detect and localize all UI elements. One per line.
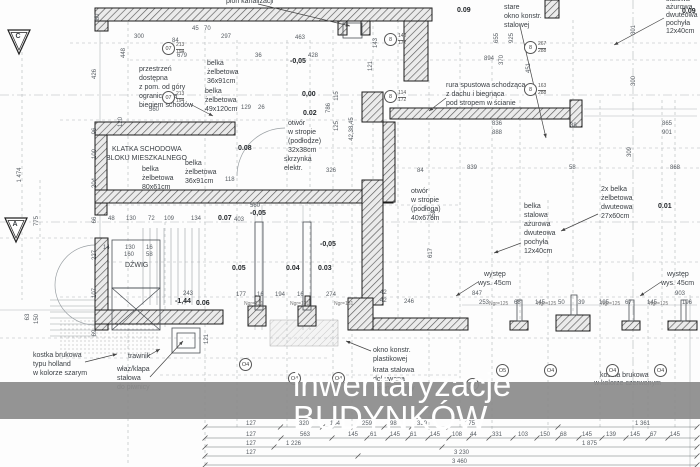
opening-tag-numbers: 267288	[538, 42, 546, 55]
dimension-value: 72	[148, 216, 155, 222]
level-marker: -1,44	[175, 298, 191, 305]
dimension-value-rotated: 66	[92, 208, 98, 232]
dimension-value: 134	[191, 216, 201, 222]
foundation-note: Ngr=131	[334, 302, 353, 307]
annotation-label: dostępna	[139, 75, 168, 82]
dimension-value-rotated: 115	[334, 84, 340, 108]
opening-tag-circle: 8	[524, 83, 537, 96]
annotation-label: belka	[185, 160, 202, 167]
dimension-value-rotated: 42,38,45	[349, 117, 355, 141]
thin-wall	[172, 328, 200, 353]
dimension-value: 194	[275, 292, 285, 298]
annotation-label: żelbetowa	[185, 169, 217, 176]
annotation-label: wys. 45cm	[478, 280, 511, 287]
dimension-value: 326	[326, 168, 336, 174]
dimension-value: 50	[558, 300, 565, 306]
opening-tag-numbers: 114172	[398, 91, 406, 104]
annotation-label: 27x60cm	[601, 213, 629, 220]
wall-segment	[362, 180, 383, 305]
level-marker: 0.03	[318, 265, 332, 272]
dimension-value: 428	[308, 53, 318, 59]
level-marker: 0.06	[196, 300, 210, 307]
dimension-value: 888	[492, 130, 502, 136]
annotation-label: żelbetowa	[601, 195, 633, 202]
opening-tag-numbers: 163288	[538, 84, 546, 97]
foundation-note: Ngr=125	[537, 302, 556, 307]
level-marker: 0.08	[238, 145, 252, 152]
axis-marker-letter: A	[13, 221, 18, 228]
level-marker: 0.09	[457, 7, 471, 14]
dimension-value-rotated: 107	[92, 281, 98, 305]
annotation-label: żelbetowa	[205, 97, 237, 104]
dimension-value-rotated: 100	[92, 142, 98, 166]
annotation-label: pion kanalizacji	[226, 0, 273, 5]
dimension-value-rotated: 204	[92, 171, 98, 195]
level-marker: 0.01	[658, 203, 672, 210]
dimension-value-rotated: 925	[509, 26, 515, 50]
foundation-note: Ngr=125	[649, 302, 668, 307]
dimension-value: 130	[125, 245, 135, 251]
dimension-value: 26	[258, 105, 265, 111]
dimension-value-rotated: 80	[95, 5, 101, 29]
wall-segment	[95, 310, 223, 324]
dimension-value-rotated: 952	[431, 203, 437, 227]
annotation-label: trawnik	[128, 353, 150, 360]
dimension-value: 70	[204, 26, 211, 32]
dimension-value: 901	[662, 130, 672, 136]
leader-line	[640, 282, 661, 296]
dimension-value: 868	[670, 165, 680, 171]
dimension-value: 297	[221, 34, 231, 40]
dimension-value-rotated: 300	[631, 69, 637, 93]
annotation-label: plastikowej	[373, 356, 407, 363]
level-marker: 0,00	[302, 91, 316, 98]
dimension-value: 253	[479, 300, 489, 306]
dimension-value-rotated: 426	[92, 62, 98, 86]
leader-line	[614, 18, 664, 45]
annotation-label: belka	[142, 166, 159, 173]
annotation-label: skrzynka	[284, 156, 312, 163]
opening-tag-numbers: 213194	[176, 92, 184, 105]
annotation-label: żelbetowa	[207, 69, 239, 76]
dimension-value: 894	[484, 56, 494, 62]
dimension-value-rotated: 786	[326, 96, 332, 120]
dimension-value: 67	[625, 300, 632, 306]
wall-segment	[545, 0, 559, 18]
annotation-label: DŹWIG	[125, 262, 148, 269]
annotation-label: KLATKA SCHODOWA	[112, 146, 182, 153]
opening-tag-circle: 8	[384, 33, 397, 46]
door-swing-arc	[55, 285, 95, 325]
annotation-label: stare	[504, 4, 520, 11]
level-marker: -0,05	[320, 241, 336, 248]
annotation-label: okno konstr.	[373, 347, 411, 354]
annotation-label: 49x120cm	[205, 106, 237, 113]
foundation-note: Ngr=125	[489, 302, 508, 307]
wall-segment	[556, 315, 590, 331]
dimension-value: 42	[380, 290, 387, 296]
door-swing-arc	[55, 245, 95, 285]
dimension-value: 130	[126, 216, 136, 222]
dimension-value: 38	[570, 123, 577, 129]
annotation-label: 2x belka	[601, 186, 627, 193]
annotation-label: przestrzeń	[139, 66, 172, 73]
annotation-label: (podłodze)	[288, 138, 321, 145]
wall-segment	[95, 190, 393, 203]
dimension-value-rotated: 120	[118, 110, 124, 134]
annotation-label: BLOKU MIESZKALNEGO	[106, 155, 187, 162]
dimension-value: 403	[234, 217, 244, 223]
wall-segment	[404, 21, 428, 81]
dimension-value: 243	[183, 291, 193, 297]
dimension-value: 1 226	[286, 441, 301, 447]
dimension-value-rotated: 617	[428, 241, 434, 265]
axis-marker-letter: C	[16, 33, 21, 40]
annotation-label: elektr.	[284, 165, 303, 172]
dimension-value: 58	[569, 165, 576, 171]
dimension-value-rotated: 69	[92, 321, 98, 345]
floor-plan-canvas: CA127320154259983391751 3611275631456114…	[0, 0, 700, 467]
wall-segment	[95, 122, 235, 135]
dimension-value: 463	[295, 35, 305, 41]
dimension-value: 839	[467, 165, 477, 171]
dimension-value: 39	[578, 300, 585, 306]
dimension-value: 836	[492, 121, 502, 127]
annotation-label: z dachu i biegnąca	[446, 91, 504, 98]
foundation-note: Ngr=125	[601, 302, 620, 307]
dimension-value-rotated: 150	[34, 307, 40, 331]
annotation-label: okno konstr.	[504, 13, 542, 20]
dimension-value: 1 875	[582, 441, 597, 447]
annotation-label: pochyła	[666, 20, 690, 27]
wall-segment	[622, 321, 640, 330]
level-marker: 0.07	[218, 215, 232, 222]
wall-segment	[383, 122, 395, 202]
level-marker: 0.04	[286, 265, 300, 272]
annotation-label: 36x91cm	[185, 178, 213, 185]
level-marker: 0.09	[682, 8, 696, 15]
annotation-label: 32x38cm	[288, 147, 316, 154]
annotation-label: dwuteowa	[524, 230, 556, 237]
wall-segment	[362, 92, 383, 122]
wall-segment	[298, 306, 316, 326]
annotation-label: 12x40cm	[524, 248, 552, 255]
dimension-value: 560	[149, 107, 159, 113]
opening-tag-numbers: 213194	[176, 43, 184, 56]
dimension-value-rotated: 125	[334, 114, 340, 138]
wall-segment	[390, 108, 572, 119]
level-marker: 0.02	[303, 110, 317, 117]
opening-tag-circle: 07	[162, 42, 175, 55]
level-marker: 0.05	[232, 265, 246, 272]
dimension-value: 118	[225, 177, 235, 183]
dimension-value: 16	[257, 292, 264, 298]
annotation-label: otwór	[411, 188, 428, 195]
level-marker: -0,05	[290, 58, 306, 65]
annotation-label: stalowa	[524, 212, 548, 219]
annotation-label: otwór	[288, 120, 305, 127]
leader-line	[346, 341, 371, 351]
dimension-value-rotated: 121	[368, 54, 374, 78]
dimension-value: 45	[192, 26, 199, 32]
dimension-value: 160	[124, 252, 134, 258]
dimension-value: 14	[103, 245, 110, 251]
dimension-value-rotated: 63	[25, 305, 31, 329]
level-marker: -0,05	[250, 210, 266, 217]
annotation-label: 36x91cm	[207, 78, 235, 85]
dimension-value: 3 230	[454, 450, 469, 456]
dimension-value-rotated: 1 474	[17, 163, 23, 187]
dimension-value: 36	[255, 53, 262, 59]
annotation-label: belka	[205, 88, 222, 95]
dimension-value-rotated: 309	[627, 140, 633, 164]
annotation-label: pod stropem w ścianie	[446, 100, 516, 107]
leader-line	[494, 243, 521, 253]
wall-segment	[668, 321, 697, 330]
annotation-label: wys. 45cm	[661, 280, 694, 287]
annotation-label: stalowej	[504, 22, 529, 29]
annotation-label: żelbetowa	[142, 175, 174, 182]
annotation-label: belka	[207, 60, 224, 67]
opening-tag-circle: 8	[384, 90, 397, 103]
annotation-label: w stropie	[288, 129, 316, 136]
opening-tag-circle: 07	[162, 91, 175, 104]
dimension-value: 3 460	[452, 459, 467, 465]
opening-tag-numbers: 140172	[398, 34, 406, 47]
wall-segment	[95, 8, 432, 21]
opening-tag-circle: 8	[524, 41, 537, 54]
dimension-value: 177	[236, 292, 246, 298]
dimension-value: 274	[326, 292, 336, 298]
annotation-label: ażurowa	[524, 221, 550, 228]
annotation-label: rura spustowa schodząca	[446, 82, 525, 89]
dimension-value: 903	[675, 291, 685, 297]
dimension-value-rotated: 96	[92, 119, 98, 143]
foundation-note: Ngr=131	[244, 302, 263, 307]
dimension-value-rotated: 370	[499, 48, 505, 72]
dimension-value: 16	[146, 245, 153, 251]
annotation-label: dwuteowa	[601, 204, 633, 211]
dimension-value-rotated: 121	[204, 327, 210, 351]
dimension-value-rotated: 227	[92, 243, 98, 267]
dimension-value: 127	[246, 450, 256, 456]
annotation-label: belka	[524, 203, 541, 210]
wall-segment	[510, 321, 528, 330]
dimension-value: 847	[472, 291, 482, 297]
dimension-value-rotated: 451	[526, 56, 532, 80]
thin-wall	[177, 333, 195, 348]
annotation-label: kostka brukowa	[33, 352, 82, 359]
dimension-value-rotated: 143	[373, 31, 379, 55]
dimension-value: 560	[250, 203, 260, 209]
annotation-label: występ	[667, 271, 689, 278]
dimension-value: 84	[417, 168, 424, 174]
door-swing-arc	[237, 128, 285, 176]
watermark-banner: inwentaryzacje BUDYNKÓW	[0, 382, 700, 419]
leader-line	[561, 214, 598, 231]
watermark-text: inwentaryzacje BUDYNKÓW	[0, 368, 700, 434]
dimension-value: 246	[404, 299, 414, 305]
dimension-value: 58	[146, 252, 153, 258]
annotation-label: 12x40cm	[666, 28, 694, 35]
dimension-value-rotated: 655	[494, 26, 500, 50]
dimension-value: 196	[682, 300, 692, 306]
dimension-value: 865	[662, 121, 672, 127]
dimension-value: 127	[246, 441, 256, 447]
annotation-label: 80x61cm	[142, 184, 170, 191]
annotation-label: pochyła	[524, 239, 548, 246]
dimension-value-rotated: 301	[631, 18, 637, 42]
dimension-value: 16	[297, 292, 304, 298]
dimension-value: 129	[241, 105, 251, 111]
dimension-value: 109	[164, 216, 174, 222]
foundation-note: Ngr=131	[290, 302, 309, 307]
wall-segment	[373, 318, 468, 330]
dimension-value-rotated: 448	[121, 41, 127, 65]
annotation-label: z pom. od góry	[139, 84, 185, 91]
dimension-value: 68	[514, 300, 521, 306]
annotation-label: stalowa	[666, 0, 690, 3]
annotation-label: występ	[484, 271, 506, 278]
dimension-value-rotated: 775	[34, 209, 40, 233]
dimension-value: 48	[108, 216, 115, 222]
dimension-value: 42	[380, 298, 387, 304]
dimension-value: 300	[134, 34, 144, 40]
